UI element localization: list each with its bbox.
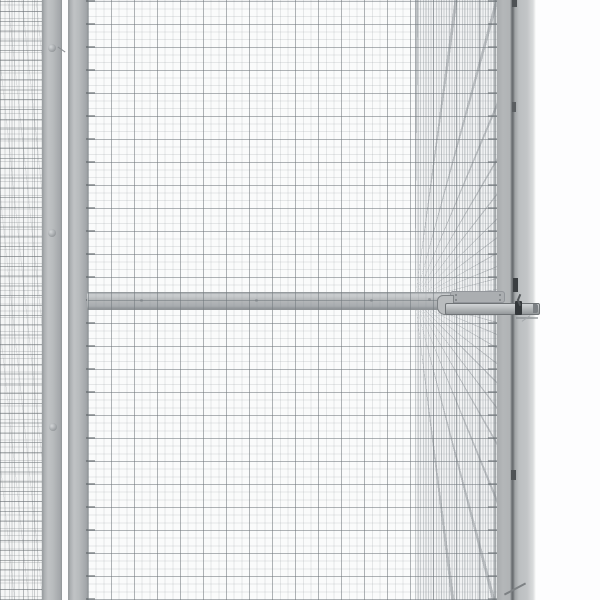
front-mesh-panel	[88, 0, 497, 600]
bolt-head	[48, 44, 56, 52]
left-frame-post	[42, 0, 62, 600]
left-side-mesh-panel	[0, 0, 42, 600]
front-left-post	[68, 0, 88, 600]
latch-screw	[455, 294, 457, 296]
seam-mark	[511, 470, 516, 480]
latch-plate	[450, 291, 505, 303]
mesh-cage-photo	[0, 0, 600, 600]
bolt-head	[48, 229, 56, 237]
latch-catch	[513, 278, 518, 292]
seam-mark	[512, 0, 517, 7]
latch-hook	[517, 294, 524, 306]
seam-mark	[512, 102, 516, 112]
latch-slide-bolt	[445, 303, 540, 315]
bolt-head	[49, 423, 57, 431]
latch-screw	[499, 299, 501, 301]
latch-screw	[499, 294, 501, 296]
latch-bolt-tip	[533, 304, 538, 313]
latch-screw	[455, 299, 457, 301]
